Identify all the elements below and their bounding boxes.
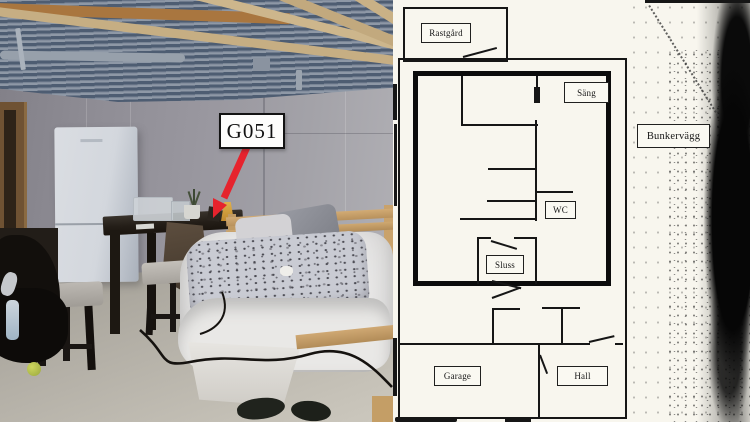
plan-wall [488,168,537,170]
room-label-garage: Garage [434,366,481,386]
plan-wall [477,237,491,239]
plan-wall [537,191,573,193]
room-label-text: Rastgård [429,28,463,38]
room-label-text: Säng [577,88,596,98]
room-label-bunkervagg: Bunkervägg [637,124,710,148]
plan-wall [492,308,520,310]
plan-wall [460,218,537,220]
scan-mark [393,84,397,120]
plan-wall [492,308,494,344]
room-label-sang: Säng [564,82,609,103]
room-label-hall: Hall [557,366,608,386]
plan-wall [561,307,563,344]
room-label-text: WC [553,205,568,215]
room-label-text: Hall [574,371,590,381]
evidence-arrow-shaft [224,147,247,198]
plan-wall [535,120,537,221]
plan-wall [398,343,590,345]
plan-wall [487,200,537,202]
plan-wall [461,124,538,126]
plan-wall [615,343,623,345]
door-leaf [534,87,540,103]
plan-wall [514,237,537,239]
plan-wall [461,76,463,126]
scan-shadow [691,0,750,422]
room-label-rastgard: Rastgård [421,23,471,43]
room-label-wc: WC [545,201,576,219]
evidence-label: G051 [219,113,285,149]
scan-mark [394,124,397,206]
power-cable [140,330,392,387]
scan-mark [393,338,397,396]
room-label-text: Garage [444,371,471,381]
power-cable [200,292,225,334]
evidence-label-text: G051 [227,119,278,144]
room-label-text: Bunkervägg [647,131,700,142]
plan-wall [477,237,479,284]
bunker-floorplan: Rastgård Säng WC Sluss Garage Hall Bunke… [393,0,750,422]
scan-mark [645,0,750,3]
photo-overlay [0,0,393,422]
bunker-wall [413,71,611,286]
room-label-sluss: Sluss [486,255,524,274]
plan-wall [535,237,537,284]
room-label-text: Sluss [495,260,515,270]
scan-noise-band [628,0,750,422]
crime-scene-photo: G051 [0,0,393,422]
evidence-composite: G051 [0,0,750,422]
evidence-arrow-head [213,198,227,218]
